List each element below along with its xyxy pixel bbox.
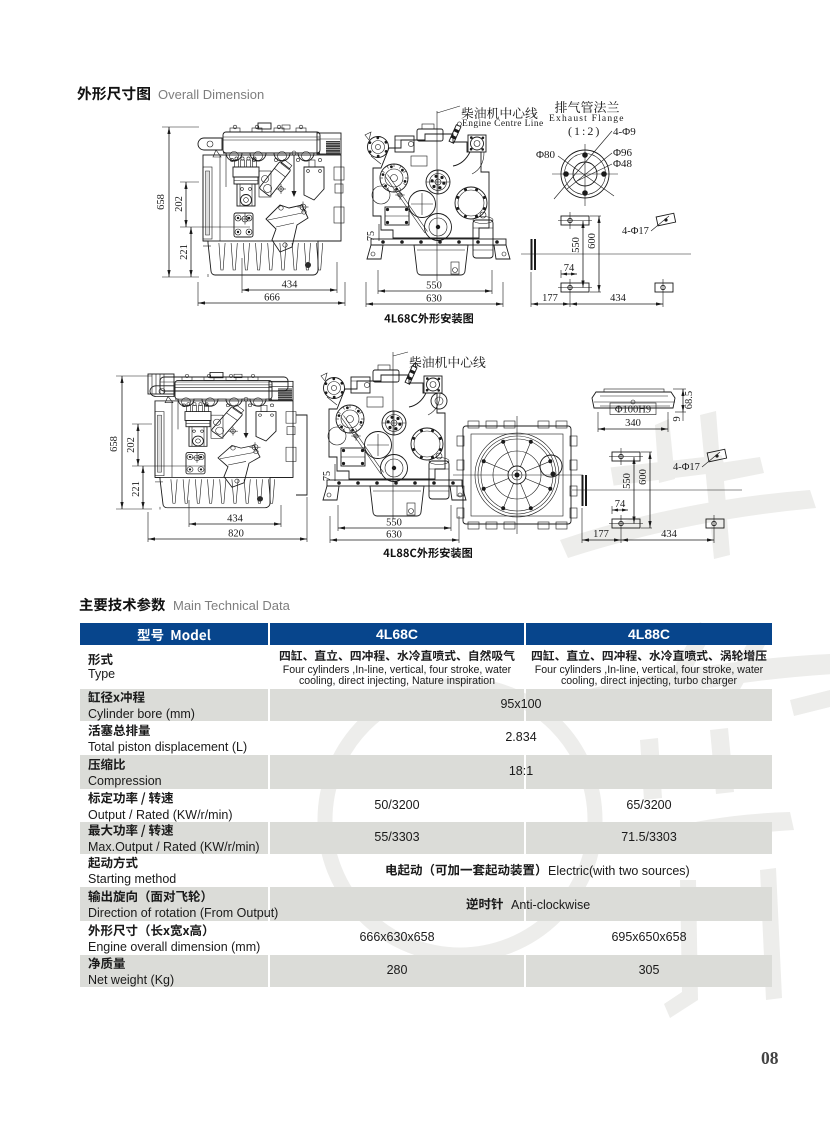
svg-text:666: 666 <box>264 293 280 304</box>
svg-text:434: 434 <box>610 293 627 304</box>
svg-text:658: 658 <box>156 194 167 210</box>
svg-text:9: 9 <box>672 416 683 421</box>
svg-text:630: 630 <box>426 294 442 305</box>
svg-text:820: 820 <box>228 529 244 540</box>
svg-text:658: 658 <box>109 436 120 452</box>
svg-text:177: 177 <box>593 529 609 540</box>
svg-text:550: 550 <box>571 237 582 253</box>
svg-text:177: 177 <box>542 293 558 304</box>
svg-text:4-Φ17: 4-Φ17 <box>673 462 700 473</box>
svg-text:Φ100H9: Φ100H9 <box>615 405 651 416</box>
svg-text:202: 202 <box>174 196 185 212</box>
svg-text:600: 600 <box>638 469 649 485</box>
svg-text:600: 600 <box>587 233 598 249</box>
svg-text:630: 630 <box>386 530 402 541</box>
svg-text:221: 221 <box>179 244 190 260</box>
svg-text:202: 202 <box>126 437 137 453</box>
svg-text:68.5: 68.5 <box>684 391 695 409</box>
svg-text:75: 75 <box>322 471 333 481</box>
svg-text:550: 550 <box>426 281 442 292</box>
svg-text:Φ80: Φ80 <box>536 149 556 161</box>
svg-text:74: 74 <box>564 263 575 274</box>
svg-text:4-Φ17: 4-Φ17 <box>622 226 649 237</box>
svg-text:434: 434 <box>661 529 678 540</box>
svg-text:434: 434 <box>227 514 244 525</box>
svg-text:434: 434 <box>282 280 299 291</box>
svg-text:4-Φ9: 4-Φ9 <box>613 126 636 138</box>
svg-text:221: 221 <box>131 481 142 497</box>
svg-text:550: 550 <box>622 473 633 489</box>
svg-text:340: 340 <box>625 418 641 429</box>
svg-text:74: 74 <box>615 499 626 510</box>
svg-text:550: 550 <box>386 518 402 529</box>
svg-text:75: 75 <box>366 231 377 241</box>
svg-text:Φ48: Φ48 <box>613 158 633 170</box>
